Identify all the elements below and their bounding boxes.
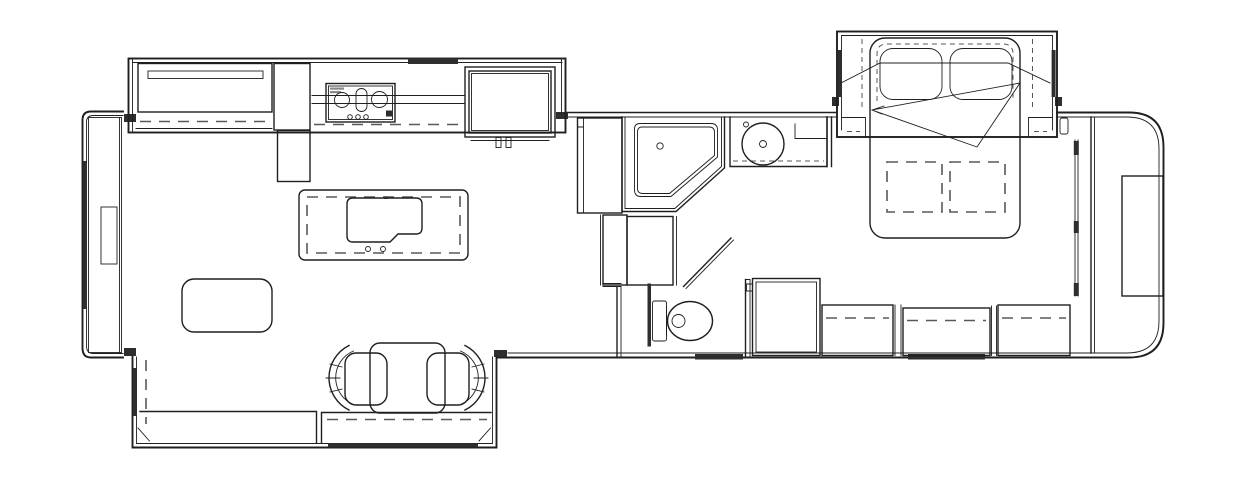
entertainment-center xyxy=(136,64,272,129)
vanity-sink xyxy=(742,123,784,165)
slide-window xyxy=(133,368,137,416)
bathroom xyxy=(578,117,832,356)
front-tv xyxy=(101,207,117,264)
slide-window xyxy=(328,443,478,447)
refrigerator xyxy=(465,67,555,148)
linen-cabinet xyxy=(578,118,623,213)
ottoman xyxy=(182,279,272,332)
bed-foot-storage xyxy=(950,162,1005,212)
tv xyxy=(148,71,263,79)
seal-mark xyxy=(832,97,839,106)
wall-fixture xyxy=(1060,118,1068,134)
knob xyxy=(356,115,361,120)
bathroom-door xyxy=(684,238,734,289)
burner xyxy=(335,93,350,108)
knob xyxy=(348,115,353,120)
closet-door-track xyxy=(1074,140,1079,296)
dinette xyxy=(326,343,488,413)
cooktop xyxy=(312,84,465,125)
bed-foot-storage xyxy=(887,162,942,212)
vanity-faucet xyxy=(744,122,749,127)
sink-detail xyxy=(384,197,388,200)
kitchen-slideout xyxy=(129,58,566,182)
entry-door xyxy=(695,354,743,360)
bed xyxy=(841,38,1050,238)
knob xyxy=(364,115,369,120)
faucet xyxy=(381,247,386,252)
range-vent xyxy=(408,58,458,65)
cooktop-label xyxy=(330,88,344,90)
wardrobe-cabinet xyxy=(747,279,821,356)
steps-cabinet xyxy=(601,215,677,285)
bedroom xyxy=(747,32,1164,356)
pantry xyxy=(274,64,310,182)
slide-window xyxy=(838,50,842,97)
pocket-door xyxy=(648,284,652,347)
vanity xyxy=(730,117,832,167)
sofa xyxy=(140,412,491,444)
seal-mark xyxy=(124,114,136,122)
rear-closet xyxy=(1060,117,1163,353)
living-slideout xyxy=(133,357,497,448)
toilet-room-walls xyxy=(603,280,750,357)
burner xyxy=(372,92,388,108)
shower xyxy=(622,117,725,212)
dinette-chair-left xyxy=(326,346,387,411)
rear-cap xyxy=(498,113,1164,358)
kitchen-island xyxy=(299,190,468,260)
fridge-handle xyxy=(506,138,511,148)
pillow xyxy=(880,49,942,100)
floorplan-canvas xyxy=(0,0,1239,501)
toilet xyxy=(653,301,713,341)
floorplan-page xyxy=(0,0,1239,501)
igniter-icon xyxy=(386,111,393,117)
blanket-line xyxy=(841,63,1050,83)
front-cap xyxy=(83,112,124,358)
dinette-chair-right xyxy=(427,346,488,411)
pillow xyxy=(950,49,1012,100)
dresser xyxy=(822,305,1070,356)
rear-wardrobe xyxy=(1122,176,1163,296)
seal-mark xyxy=(494,350,507,357)
dresser-right xyxy=(998,305,1070,356)
front-window xyxy=(83,161,87,309)
faucet xyxy=(366,247,371,252)
burner xyxy=(356,89,367,112)
dresser-center xyxy=(903,308,990,356)
dresser-left xyxy=(822,305,893,356)
island-sink xyxy=(347,198,422,242)
shower-drain xyxy=(657,143,663,149)
seal-mark xyxy=(124,348,136,356)
slide-window xyxy=(1052,50,1056,97)
fridge-handle xyxy=(496,138,501,148)
